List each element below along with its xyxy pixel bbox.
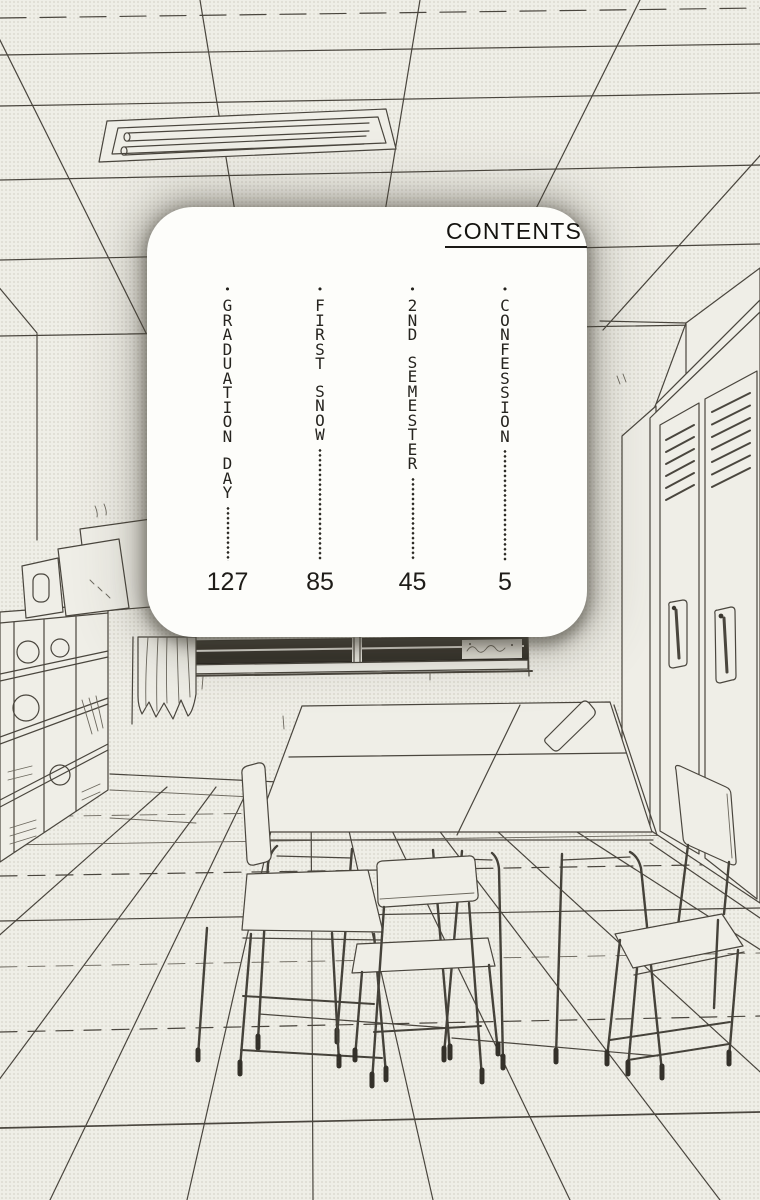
curtain <box>132 637 196 724</box>
fluorescent-light <box>99 109 396 162</box>
dotted-leader <box>318 448 322 562</box>
entry-page-number: 127 <box>207 568 249 598</box>
entry-page-number: 5 <box>498 568 512 598</box>
toc-entry: •GRADUATIONDAY127 <box>196 284 260 598</box>
contents-heading: CONTENTS <box>445 219 587 248</box>
left-wall-corner <box>37 334 106 540</box>
manga-contents-page: CONTENTS •CONFESSION5•2NDSEMESTER45•FIRS… <box>0 0 760 1200</box>
entry-title: CONFESSION <box>500 299 510 444</box>
entry-title: GRADUATIONDAY <box>223 299 233 501</box>
window <box>179 636 532 689</box>
cubby-shelf <box>0 604 108 862</box>
entry-page-number: 45 <box>399 568 427 598</box>
toc-entry: •2NDSEMESTER45 <box>381 284 445 598</box>
dotted-leader <box>411 477 415 562</box>
entry-page-number: 85 <box>306 568 334 598</box>
toc-entry: •CONFESSION5 <box>473 284 537 598</box>
toc-entry: •FIRSTSNOW85 <box>288 284 352 598</box>
dotted-leader <box>226 506 230 562</box>
contents-panel: CONTENTS •CONFESSION5•2NDSEMESTER45•FIRS… <box>147 207 587 637</box>
entry-title: 2NDSEMESTER <box>408 299 418 472</box>
entry-title: FIRSTSNOW <box>315 299 325 443</box>
dotted-leader <box>503 449 507 561</box>
